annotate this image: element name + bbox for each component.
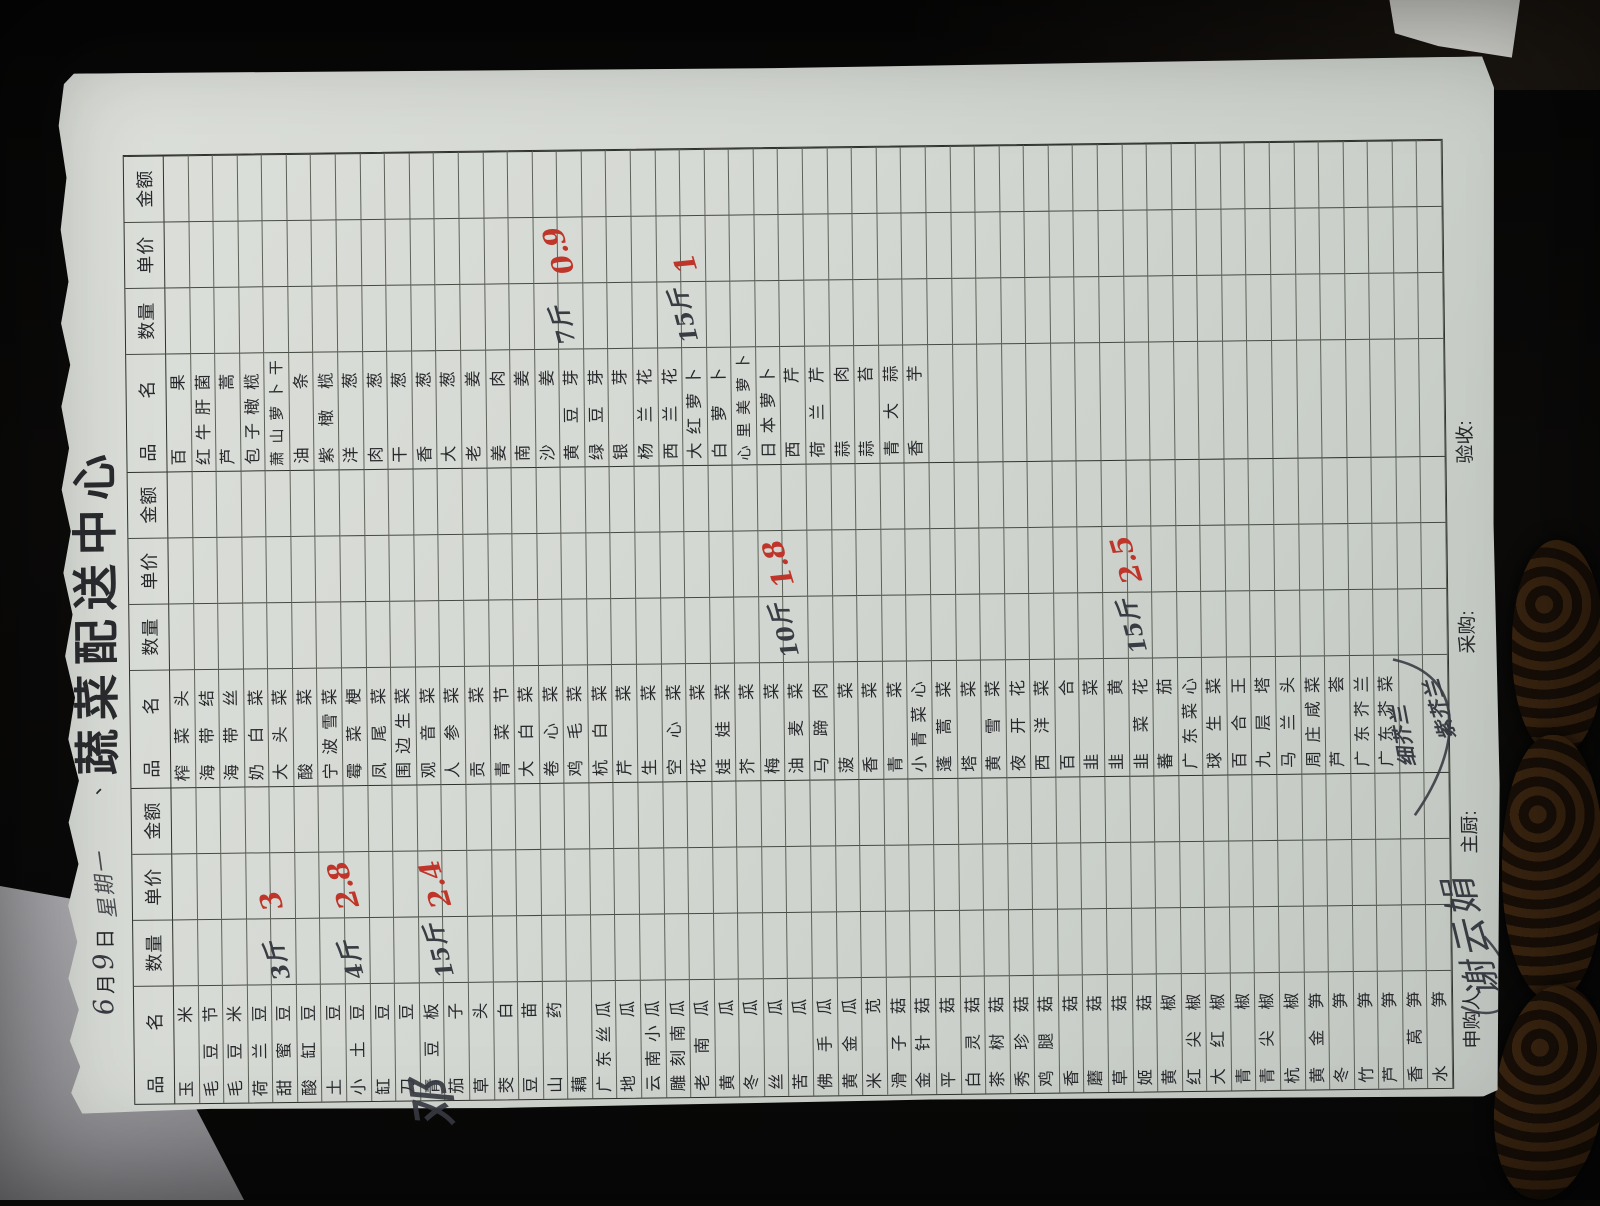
price-cell [1082, 842, 1107, 908]
name-char: 秀 [1015, 1070, 1032, 1087]
name-char: 贡 [470, 761, 487, 778]
name-char: 合 [1059, 679, 1076, 696]
name-char: 草 [474, 1077, 491, 1094]
name-char: 黄 [843, 1073, 860, 1090]
name-char: 云 [646, 1075, 663, 1092]
name-char: 瓜 [645, 1000, 662, 1017]
name-char: 周 [1306, 751, 1323, 768]
amount-cell [413, 468, 438, 534]
name-char: 东 [1355, 725, 1372, 742]
price-cell [193, 537, 218, 603]
name-char: 尖 [1260, 1030, 1277, 1047]
qty-cell [169, 603, 194, 669]
header-qty-label: 数量 [125, 287, 166, 353]
price-cell [291, 536, 316, 602]
amount-cell [680, 149, 705, 215]
amount-cell [704, 149, 729, 215]
name-char: 香 [863, 756, 880, 773]
item-name-cell: 大白菜 [514, 665, 540, 783]
name-char: 西 [786, 441, 803, 458]
name-char: 椒 [1259, 993, 1276, 1010]
name-char: 菇 [1038, 996, 1055, 1013]
amount-cell [688, 781, 713, 847]
price-cell [459, 218, 484, 284]
qty-cell [984, 909, 1009, 975]
qty-cell [538, 599, 563, 665]
item-name-cell: 萧山萝卜干 [264, 352, 290, 470]
item-name-cell: 菠菜 [834, 661, 860, 779]
price-cell [172, 853, 197, 919]
qty-cell [1279, 906, 1304, 972]
amount-cell [540, 783, 565, 849]
amount-cell [565, 782, 590, 848]
amount-cell [459, 152, 484, 218]
item-name-cell: 姜肉 [486, 349, 512, 467]
name-char: 菜 [862, 682, 879, 699]
name-char: 菜 [592, 685, 609, 702]
amount-cell [1220, 142, 1245, 208]
name-char: 卜 [270, 383, 285, 398]
price-cell [713, 847, 738, 913]
date-day-label: 日 [95, 929, 117, 949]
name-char: 百 [1232, 752, 1249, 769]
amount-cell [1126, 459, 1151, 525]
amount-cell [1200, 459, 1225, 525]
qty-cell [411, 284, 436, 350]
name-char: 笋 [1309, 992, 1326, 1009]
price-cell [1422, 522, 1447, 588]
qty-cell [239, 286, 264, 352]
name-char: 椒 [1235, 993, 1252, 1010]
item-name-cell: 奶白菜 [244, 668, 270, 786]
header-amount-label: 金额 [131, 787, 172, 853]
price-cell [1098, 210, 1123, 276]
amount-cell [536, 467, 561, 533]
name-char: 菠 [839, 757, 856, 774]
name-char: 雪 [322, 713, 339, 730]
name-char: 麦 [789, 720, 806, 737]
name-char: 平 [941, 1071, 958, 1088]
amount-cell [483, 151, 508, 217]
amount-cell [926, 146, 951, 212]
item-name-cell: 佛手瓜 [813, 977, 839, 1095]
price-cell [926, 212, 951, 278]
price-cell [509, 217, 534, 283]
item-name-cell: 玉米 [174, 985, 200, 1103]
price-cell [881, 528, 906, 594]
page-title: 、蔬菜配送中心 [58, 445, 128, 796]
price-cell [959, 844, 984, 910]
price-cell [832, 529, 857, 595]
amount-cell [582, 150, 607, 216]
name-char: 量 [132, 303, 158, 321]
price-cell [1323, 523, 1348, 589]
price-cell [857, 529, 882, 595]
name-char: 豆 [523, 1076, 540, 1093]
name-char: 金 [131, 190, 157, 208]
name-char: 瓜 [596, 1001, 613, 1018]
name-char: 豆 [326, 1004, 343, 1021]
item-name-cell: 丝瓜 [764, 978, 790, 1096]
qty-cell [1254, 906, 1279, 972]
name-char: 荟 [1329, 676, 1346, 693]
amount-cell [364, 469, 389, 535]
name-char: 菜 [1084, 679, 1101, 696]
price-cell [492, 849, 517, 915]
name-char: 节 [494, 686, 511, 703]
amount-cell [880, 462, 905, 528]
price-cell [955, 528, 980, 594]
amount-cell [1147, 143, 1172, 209]
name-char: 心 [912, 681, 929, 698]
header-amount-label: 金额 [124, 155, 165, 221]
name-char: 大 [687, 442, 704, 459]
name-char: 米 [178, 1006, 195, 1023]
amount-cell [1327, 773, 1352, 839]
price-cell [885, 844, 910, 910]
item-name-cell: 冬瓜 [739, 978, 765, 1096]
item-name-cell: 大头菜 [268, 668, 294, 786]
amount-cell [803, 147, 828, 213]
name-char: 头 [473, 1003, 490, 1020]
name-char: 芹 [809, 366, 826, 383]
name-char: 开 [1010, 717, 1027, 734]
amount-cell [729, 148, 754, 214]
name-char: 萝 [712, 405, 729, 422]
item-name-cell: 生菜 [637, 663, 663, 781]
amount-cell [343, 785, 368, 851]
name-char: 蒜 [859, 440, 876, 457]
item-name-cell: 芦荟 [1325, 655, 1351, 773]
name-char: 菜 [887, 681, 904, 698]
qty-cell [878, 278, 903, 344]
amount-cell [1073, 144, 1098, 210]
qty-cell [440, 600, 465, 666]
item-name-cell [1100, 342, 1126, 460]
qty-cell [513, 599, 538, 665]
name-char: 茄 [1157, 678, 1174, 695]
price-cell [607, 216, 632, 282]
price-cell [393, 850, 418, 916]
item-name-cell: 百合王 [1227, 656, 1253, 774]
price-cell [635, 531, 660, 597]
amount-cell [860, 779, 885, 845]
name-char: 橄 [244, 398, 261, 415]
item-name-cell: 芦笋 [1378, 970, 1404, 1088]
item-name-cell: 青尖椒 [1255, 972, 1281, 1090]
item-name-cell [1272, 340, 1298, 458]
name-char: 宁 [323, 763, 340, 780]
price-cell [811, 845, 836, 911]
date-line: 6月9日星期一 [87, 850, 120, 1020]
price-cell [762, 846, 787, 912]
price-cell [488, 533, 513, 599]
amount-cell [1081, 776, 1106, 842]
name-char: 黄 [720, 1074, 737, 1091]
name-char: 合 [1232, 715, 1249, 732]
price-cell [1373, 522, 1398, 588]
item-name-cell: 日本萝卜 [756, 346, 782, 464]
name-char: 数 [136, 638, 162, 656]
name-char: 酸 [302, 1079, 319, 1096]
qty-cell [661, 597, 686, 663]
amount-cell [754, 148, 779, 214]
qty-cell [1251, 590, 1276, 656]
name-char: 西 [1035, 754, 1052, 771]
name-char: 芦 [1383, 1066, 1400, 1083]
item-name-cell: 秀珍菇 [1009, 975, 1035, 1093]
amount-cell [512, 467, 537, 533]
amount-cell [684, 465, 709, 531]
name-char: 莴 [1407, 1028, 1424, 1045]
name-char: 豆 [276, 1005, 293, 1022]
item-name-cell: 芥菜 [735, 662, 761, 780]
qty-cell [952, 278, 977, 344]
name-char: 芥 [1354, 701, 1371, 718]
name-char: 价 [135, 553, 161, 571]
amount-cell [462, 468, 487, 534]
name-char: 金 [138, 822, 164, 840]
item-name-cell: 大葱 [436, 350, 462, 468]
qty-cell [1349, 589, 1374, 655]
name-char: 冬 [744, 1074, 761, 1091]
qty-cell [886, 910, 911, 976]
qty-cell [1419, 272, 1444, 338]
name-char: 生 [642, 759, 659, 776]
name-char: 草 [1113, 1069, 1130, 1086]
name-char: 豆 [252, 1005, 269, 1022]
name-char: 菜 [420, 687, 437, 704]
name-char: 蘑 [1088, 1070, 1105, 1087]
name-char: 菜 [567, 685, 584, 702]
item-name-cell: 蓬蒿菜 [932, 660, 958, 778]
name-char: 油 [294, 447, 311, 464]
name-char: 花 [691, 758, 708, 775]
amount-cell [958, 778, 983, 844]
amount-cell [245, 786, 270, 852]
name-char: 层 [1256, 714, 1273, 731]
price-cell [979, 527, 1004, 593]
name-char: 梅 [765, 757, 782, 774]
qty-cell [714, 913, 739, 979]
name-char: 海 [224, 764, 241, 781]
name-char: 菜 [175, 727, 192, 744]
amount-cell [1101, 460, 1126, 526]
amount-cell [761, 780, 786, 846]
header-price-label: 单价 [132, 853, 173, 919]
price-cell [787, 846, 812, 912]
amount-cell [659, 465, 684, 531]
item-name-cell: 缸豆 [370, 983, 396, 1101]
item-name-cell [953, 344, 979, 462]
name-char: 葱 [416, 371, 433, 388]
item-name-cell: 芹菜 [612, 664, 638, 782]
name-char: 芽 [564, 369, 581, 386]
price-cell [365, 535, 390, 601]
name-char: 心 [666, 721, 683, 738]
amount-cell [1319, 141, 1344, 207]
name-char: 苗 [522, 1002, 539, 1019]
qty-cell [763, 912, 788, 978]
name-char: 兰 [810, 404, 827, 421]
amount-cell [1372, 456, 1397, 522]
price-cell [1004, 527, 1029, 593]
name-char: 缸 [376, 1078, 393, 1095]
name-char: 芦 [1330, 751, 1347, 768]
amount-cell [561, 466, 586, 532]
amount-cell [1270, 142, 1295, 208]
name-char: 鸡 [1039, 1070, 1056, 1087]
item-name-cell: 广东菜心 [1178, 657, 1204, 775]
item-name-cell: 水笋 [1427, 970, 1453, 1088]
name-char: 豆 [301, 1005, 318, 1022]
item-name-cell: 姬菇 [1132, 973, 1158, 1091]
price-cell [218, 537, 243, 603]
header-name-label: 品名 [126, 353, 167, 471]
price-cell [1032, 843, 1057, 909]
name-char: 玉 [179, 1081, 196, 1098]
price-cell [295, 852, 320, 918]
amount-cell [589, 782, 614, 848]
amount-cell [1154, 775, 1179, 841]
name-char: 广 [1355, 750, 1372, 767]
qty-cell [366, 601, 391, 667]
qty-cell [1156, 907, 1181, 973]
name-char: 苋 [866, 998, 883, 1015]
header-name-label: 品名 [134, 985, 175, 1103]
name-char: 树 [990, 1034, 1007, 1051]
name-char: 菜 [740, 683, 757, 700]
price-cell [1123, 209, 1148, 275]
name-char: 大 [519, 760, 536, 777]
price-cell [1295, 207, 1320, 273]
item-name-cell: 红尖椒 [1181, 973, 1207, 1091]
name-char: 老 [695, 1074, 712, 1091]
name-char: 豆 [228, 1043, 245, 1060]
name-char: 金 [916, 1072, 933, 1089]
item-name-cell [1026, 343, 1052, 461]
amount-cell [1302, 773, 1327, 839]
item-name-cell: 塔菜 [956, 660, 982, 778]
item-name-cell: 杭椒 [1280, 972, 1306, 1090]
name-char: 杭 [1285, 1067, 1302, 1084]
name-char: 红 [1211, 1031, 1228, 1048]
item-name-cell: 海带结 [195, 669, 221, 787]
name-char: 日 [761, 442, 778, 459]
item-name-cell: 平菇 [936, 976, 962, 1094]
qty-cell [485, 283, 510, 349]
qty-cell [612, 598, 637, 664]
item-name-cell: 贡菜 [465, 666, 491, 784]
name-char: 庄 [1305, 726, 1322, 743]
name-char: 马 [814, 757, 831, 774]
qty-cell [1222, 274, 1247, 340]
name-char: 兰 [1354, 676, 1371, 693]
price-cell [238, 220, 263, 286]
price-cell [1299, 523, 1324, 589]
qty-cell [857, 595, 882, 661]
name-char: 椒 [1210, 994, 1227, 1011]
qty-cell [1247, 274, 1272, 340]
price-cell [1204, 841, 1229, 907]
amount-cell [835, 779, 860, 845]
qty-cell [591, 914, 616, 980]
name-char: 姜 [539, 370, 556, 387]
name-char: 青 [1260, 1067, 1277, 1084]
price-cell [730, 214, 755, 280]
price-cell [1053, 526, 1078, 592]
name-char: 菜 [273, 689, 290, 706]
amount-cell [515, 783, 540, 849]
amount-cell [1351, 773, 1376, 839]
name-char: 青 [1236, 1068, 1253, 1085]
amount-cell [315, 469, 340, 535]
price-cell [582, 216, 607, 282]
price-cell [386, 218, 411, 284]
amount-cell [221, 787, 246, 853]
name-char: 美 [737, 400, 752, 415]
price-cell [983, 843, 1008, 909]
qty-cell [1275, 590, 1300, 656]
name-char: 品 [134, 444, 160, 462]
name-char: 带 [224, 727, 241, 744]
item-name-cell: 围边生菜 [391, 666, 417, 784]
name-char: 茭 [499, 1077, 516, 1094]
amount-cell [1249, 458, 1274, 524]
name-char: 椒 [1284, 993, 1301, 1010]
item-name-cell: 鸡腿菇 [1034, 975, 1060, 1093]
name-char: 尾 [371, 725, 388, 742]
name-char: 菜 [690, 684, 707, 701]
price-cell [1131, 841, 1156, 907]
price-cell [1155, 841, 1180, 907]
name-char: 蒜 [883, 366, 900, 383]
name-char: 金 [842, 1035, 859, 1052]
name-char: 萝 [737, 377, 752, 392]
price-cell [1029, 527, 1054, 593]
qty-cell [313, 285, 338, 351]
amount-cell [757, 464, 782, 530]
qty-cell [436, 284, 461, 350]
header-price-label: 单价 [125, 221, 166, 287]
qty-cell [910, 910, 935, 976]
price-cell [1369, 206, 1394, 272]
amount-cell [585, 466, 610, 532]
name-char: 瓜 [743, 999, 760, 1016]
qty-cell [1377, 904, 1402, 970]
qty-cell [296, 918, 321, 984]
name-char: 缸 [301, 1042, 318, 1059]
item-name-cell: 荷兰豆 [248, 984, 274, 1102]
name-char: 菌 [195, 374, 212, 391]
name-char: 肉 [834, 366, 851, 383]
name-char: 米 [867, 1072, 884, 1089]
name-char: 子 [448, 1003, 465, 1020]
item-name-cell: 花菜 [686, 663, 712, 781]
price-cell [316, 535, 341, 601]
name-char: 价 [131, 237, 157, 255]
name-char: 白 [519, 723, 536, 740]
name-char: 青 [912, 731, 929, 748]
qty-cell [755, 280, 780, 346]
amount-cell [884, 778, 909, 844]
item-name-cell: 蘑菇 [1083, 974, 1109, 1092]
item-name-cell: 西洋菜 [1030, 659, 1056, 777]
amount-cell [1048, 144, 1073, 210]
name-char: 菇 [891, 997, 908, 1014]
qty-cell [927, 278, 952, 344]
name-char: 香 [1408, 1066, 1425, 1083]
